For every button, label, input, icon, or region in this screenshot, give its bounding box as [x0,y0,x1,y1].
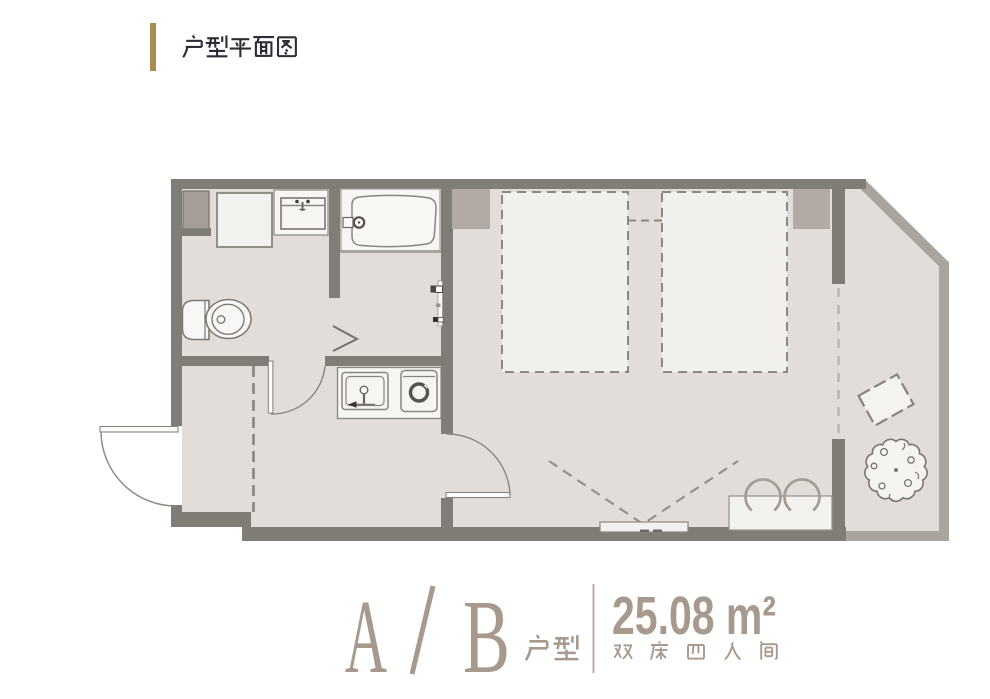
svg-text:A: A [345,578,387,695]
svg-text:B: B [463,578,510,695]
svg-text:25.08 m²: 25.08 m² [612,586,776,646]
